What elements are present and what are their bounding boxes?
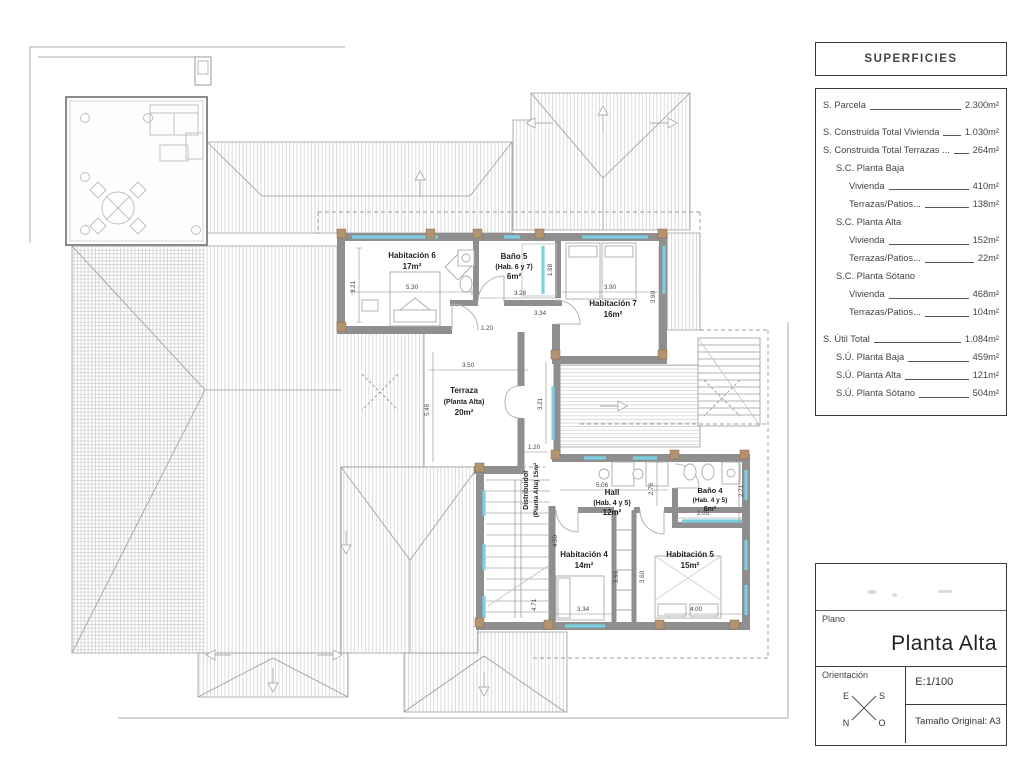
leader-line (925, 207, 969, 208)
compass-icon: E S N O (835, 682, 893, 730)
row-value: 22m² (978, 252, 999, 266)
title-block: Plano Planta Alta Orientación E S N O E:… (815, 563, 1007, 746)
table-row: S. Parcela 2.300m² (823, 99, 999, 113)
sheet-title: Planta Alta (816, 624, 1006, 666)
row-value: 104m² (973, 306, 999, 320)
row-value: 1.084m² (965, 333, 999, 347)
dim: 2.71 (738, 484, 745, 497)
dim: 3.90 (650, 290, 657, 303)
row-label: S.Ú. Planta Sótano (836, 387, 915, 401)
room-area-bano4: 6m² (704, 506, 717, 513)
row-value: 264m² (973, 144, 999, 158)
table-row: S.C. Planta Alta (823, 216, 999, 230)
room-label-hab4: Habitación 4 (560, 550, 608, 559)
original-size: Tamaño Original: A3 (906, 705, 1006, 744)
table-row: Vivienda 468m² (823, 288, 999, 302)
dim: 3.60 (639, 570, 646, 583)
row-label: S.C. Planta Alta (836, 216, 901, 230)
row-label: Vivienda (849, 234, 885, 248)
row-label: Terrazas/Patios... (849, 306, 921, 320)
roof-left-west-band (72, 246, 205, 653)
room-area-hab5: 15m² (681, 561, 700, 570)
room-label-hall: Hall (605, 488, 620, 497)
row-value: 138m² (973, 198, 999, 212)
superficies-table: S. Parcela 2.300m² S. Construida Total V… (815, 88, 1007, 416)
leader-line (905, 379, 969, 380)
orientation-label: Orientación (822, 670, 905, 680)
room-area-hab4: 14m² (575, 561, 594, 570)
leader-line (919, 397, 969, 398)
row-label: Vivienda (849, 180, 885, 194)
room-area-hab6: 17m² (403, 262, 422, 271)
room-area-terraza: 20m² (455, 408, 474, 417)
room-label-bano5: Baño 5 (501, 252, 528, 261)
room-label-hab5: Habitación 5 (666, 550, 714, 559)
dim: 1.98 (547, 263, 554, 276)
room-sub-hall: (Hab. 4 y 5) (593, 500, 630, 507)
room-label-bano4: Baño 4 (697, 486, 723, 495)
leader-line (874, 342, 961, 343)
scale-value: E:1/100 (906, 667, 1006, 705)
row-label: S.C. Planta Baja (836, 162, 904, 176)
room-sub-distribuidor: (Planta Alta) 15m² (533, 462, 540, 517)
room-sub-bano4: (Hab. 4 y 5) (693, 497, 728, 504)
compass-n: N (842, 718, 849, 728)
room-label-hab6: Habitación 6 (388, 251, 436, 260)
roof-right-strip (667, 233, 700, 330)
table-row: Vivienda 152m² (823, 234, 999, 248)
row-value: 152m² (973, 234, 999, 248)
row-label: Terrazas/Patios... (849, 252, 921, 266)
row-value: 121m² (973, 369, 999, 383)
dim: 3.34 (577, 606, 590, 613)
dim: 3.21 (537, 397, 544, 410)
room-area-hall: 12m² (603, 508, 622, 517)
table-row: S.C. Planta Baja (823, 162, 999, 176)
room-label-distribuidor: Distribuidor (523, 470, 530, 510)
leader-line (889, 298, 969, 299)
table-row: Terrazas/Patios... 104m² (823, 306, 999, 320)
row-label: S.Ú. Planta Alta (836, 369, 901, 383)
leader-line (925, 316, 969, 317)
orientation-cell: Orientación E S N O (816, 667, 905, 743)
row-value: 504m² (973, 387, 999, 401)
table-row: Vivienda 410m² (823, 180, 999, 194)
table-row: S.Ú. Planta Sótano 504m² (823, 387, 999, 401)
row-value: 2.300m² (965, 99, 999, 113)
compass-s: S (879, 691, 885, 701)
room-area-bano5: 6m² (507, 272, 522, 281)
row-value: 1.030m² (965, 126, 999, 140)
leader-line (889, 244, 969, 245)
floorplan-sheet: 5.30 3.21 3.28 1.98 3.34 1.20 3.90 3.90 … (0, 0, 1024, 768)
dim: 5.46 (424, 403, 431, 416)
row-label: S. Parcela (823, 99, 866, 113)
row-label: Vivienda (849, 288, 885, 302)
leader-line (889, 189, 969, 190)
row-value: 468m² (973, 288, 999, 302)
leader-line (908, 361, 968, 362)
table-row: S.C. Planta Sótano (823, 270, 999, 284)
room-label-terraza: Terraza (450, 386, 478, 395)
leader-line (954, 153, 969, 154)
title-block-logo-area (816, 564, 1006, 611)
dim: 2.76 (648, 482, 655, 495)
compass-o: O (878, 718, 885, 728)
dim: 4.50 (552, 534, 559, 547)
dim: 5.30 (406, 284, 419, 291)
compass-e: E (843, 691, 849, 701)
dim: 3.34 (534, 310, 547, 317)
dim: 4.71 (531, 598, 538, 611)
dim: 1.20 (528, 444, 541, 451)
leader-line (925, 262, 974, 263)
row-label: S.Ú. Planta Baja (836, 351, 904, 365)
roof-mid-right (560, 365, 700, 447)
dim: 3.50 (462, 362, 475, 369)
row-label: S.C. Planta Sótano (836, 270, 915, 284)
table-row: Terrazas/Patios... 138m² (823, 198, 999, 212)
superficies-header: SUPERFICIES (815, 42, 1007, 76)
room-label-hab7: Habitación 7 (589, 299, 637, 308)
dim: 3.28 (514, 290, 527, 297)
table-row: S.Ú. Planta Baja 459m² (823, 351, 999, 365)
row-value: 410m² (973, 180, 999, 194)
roof-terrace (66, 97, 207, 245)
table-row: Terrazas/Patios... 22m² (823, 252, 999, 266)
table-row: S. Construida Total Terrazas ... 264m² (823, 144, 999, 158)
dim: 4.00 (690, 606, 703, 613)
room-sub-bano5: (Hab. 6 y 7) (495, 264, 532, 271)
table-row: S. Construida Total Vivienda 1.030m² (823, 126, 999, 140)
leader-line (943, 135, 960, 136)
row-value: 459m² (973, 351, 999, 365)
scale-size-cell: E:1/100 Tamaño Original: A3 (905, 667, 1006, 743)
table-row: S.Ú. Planta Alta 121m² (823, 369, 999, 383)
dim: 1.20 (481, 325, 494, 332)
leader-line (870, 109, 961, 110)
room-area-hab7: 16m² (604, 310, 623, 319)
row-label: S. Construida Total Terrazas ... (823, 144, 950, 158)
roof-top-center (207, 142, 512, 233)
dim: 3.60 (613, 570, 620, 583)
row-label: S. Útil Total (823, 333, 870, 347)
interior-stair (486, 480, 550, 618)
row-label: S. Construida Total Vivienda (823, 126, 939, 140)
dim: 3.21 (350, 280, 357, 293)
title-block-bottom: Orientación E S N O E:1/100 Tamaño Origi… (816, 666, 1006, 743)
row-label: Terrazas/Patios... (849, 198, 921, 212)
table-row: S. Útil Total 1.084m² (823, 333, 999, 347)
room-sub-terraza: (Planta Alta) (444, 399, 485, 406)
plano-label: Plano (816, 611, 1006, 624)
dim: 3.90 (604, 284, 617, 291)
superficies-title: SUPERFICIES (864, 53, 957, 65)
